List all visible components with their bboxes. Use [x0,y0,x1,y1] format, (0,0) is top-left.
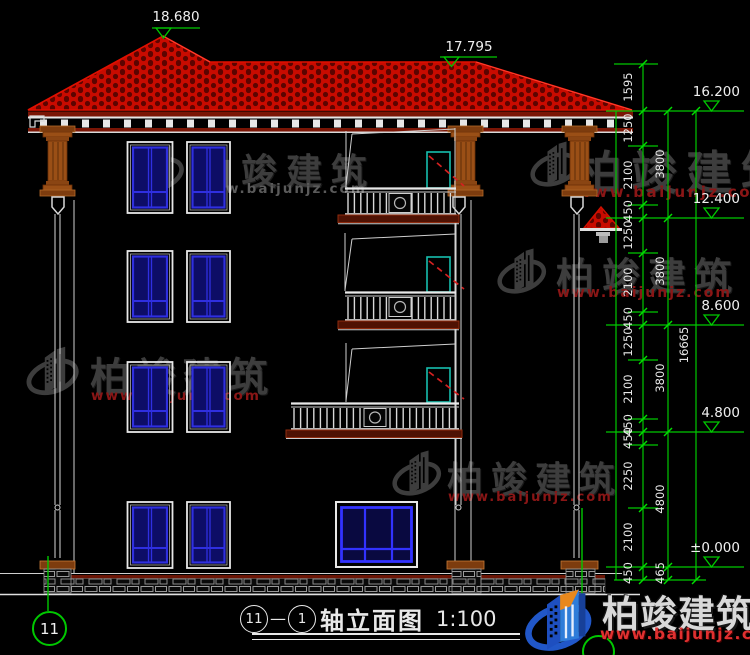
axis-bubble-label: 11 [40,620,59,638]
recess-outlines [345,129,455,402]
roof [28,36,632,110]
dim-label: 2250 [620,446,636,506]
title-underline [252,633,520,635]
footer-url-text: www.baijunjz.com [600,625,750,643]
downspout-right [571,197,583,558]
roof-elevation-label: 18.680 [144,9,208,25]
column-left [40,126,75,196]
title-underline [252,639,520,640]
dim-label: 3800 [652,348,668,408]
elevation-label: ±0.000 [656,540,740,556]
title-dash: — [270,609,286,628]
dim-label: 4800 [652,469,668,529]
eave-band [28,112,633,134]
column-far-right [562,126,597,196]
elevation-linework [0,0,750,655]
title-axis-start: 11 [240,605,268,633]
elevation-label: 12.400 [656,191,740,207]
balcony-4f [338,189,459,224]
elevation-label: 8.600 [656,298,740,314]
dim-label: 3800 [652,241,668,301]
balcony-3f [338,293,459,330]
roof-elevation-label: 17.795 [437,39,501,55]
axis-bubble-11: 11 [32,611,67,646]
baijun-logo-color-icon [522,582,602,655]
drawing-title: 11 — 1 轴立面图 1:100 [240,601,497,636]
window-large-ground [336,502,417,567]
elevation-label: 16.200 [656,84,740,100]
title-axis-end: 1 [288,605,316,633]
downspout-left [52,197,64,558]
cad-elevation-drawing: 柏竣建筑 www.baijunjz.com 柏竣建筑 www.baijunjz.… [0,0,750,655]
elevation-label: 4.800 [656,405,740,421]
dim-label-overall: 16665 [676,315,692,375]
windows-small [128,142,231,568]
dim-label: 3800 [652,134,668,194]
footer-brand: 柏竣建筑 www.baijunjz.com [520,580,750,655]
title-name: 轴立面图 [320,601,424,636]
balcony-2f [286,404,462,439]
title-scale: 1:100 [436,607,497,631]
column-mid-right [448,126,483,196]
